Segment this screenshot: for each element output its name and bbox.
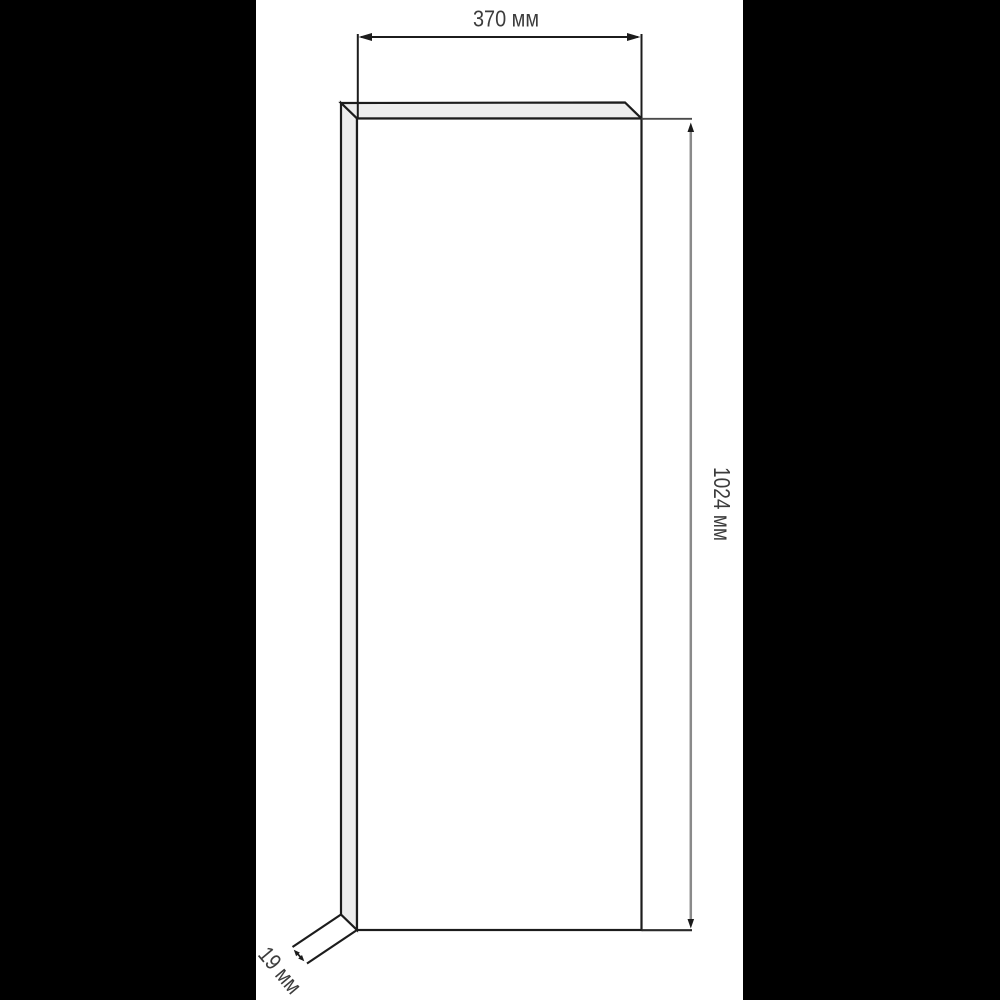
svg-text:370 мм: 370 мм	[473, 6, 539, 32]
svg-text:1024 мм: 1024 мм	[709, 467, 735, 541]
svg-text:19 мм: 19 мм	[253, 942, 307, 999]
